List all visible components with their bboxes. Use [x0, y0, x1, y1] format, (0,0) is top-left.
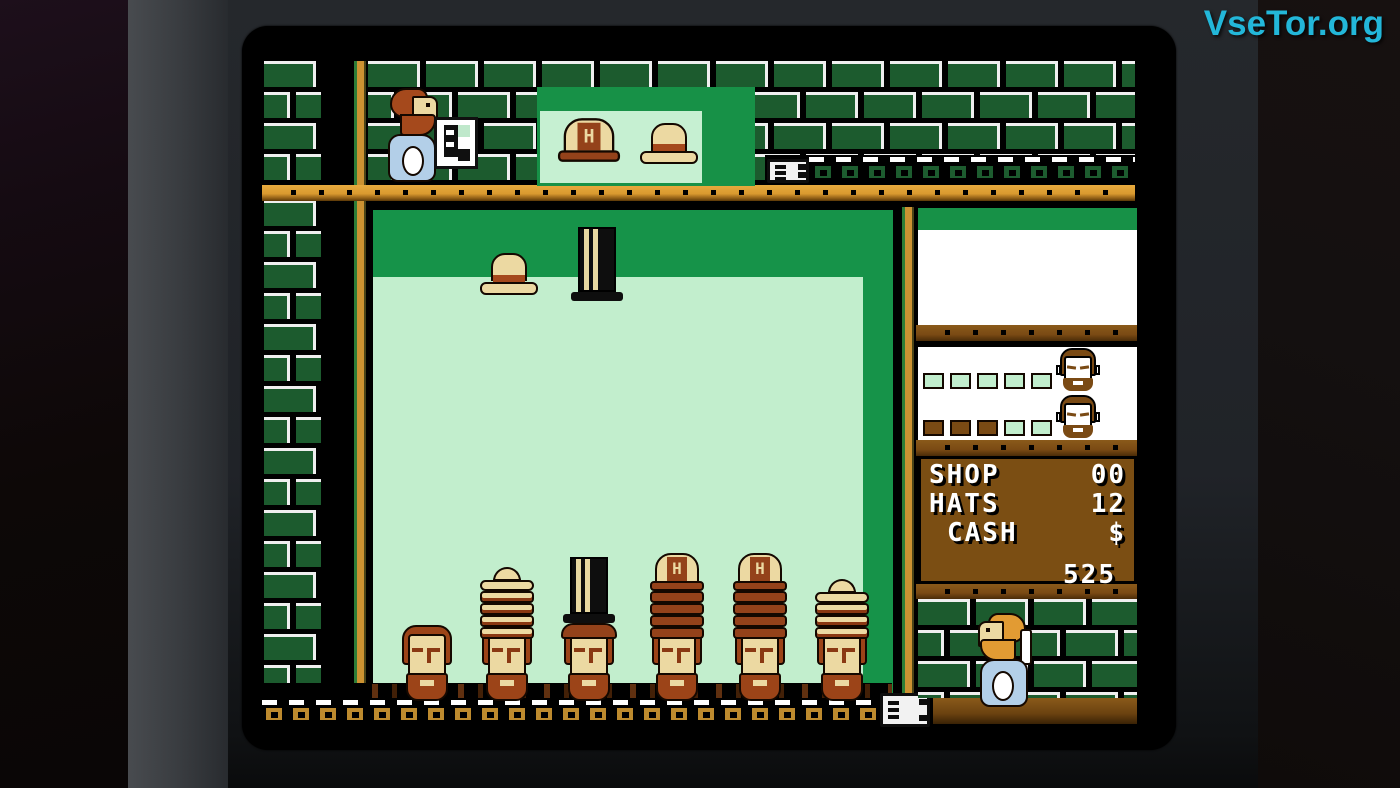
hud-hats-value: 12: [1091, 489, 1126, 517]
sidebar-beam-3: [916, 584, 1137, 599]
pillar-right: [900, 207, 916, 693]
hat-dispenser-machine: [767, 159, 809, 183]
hand: [402, 146, 424, 176]
sewing-machine: [880, 693, 930, 727]
hand: [992, 671, 1014, 701]
monitor-side-panel: [128, 0, 228, 788]
customer-panel: [918, 347, 1137, 440]
customer-conveyor: [262, 683, 892, 728]
meter-cell-empty: [950, 373, 971, 389]
meter-cell-empty: [923, 373, 944, 389]
meter-cell-empty: [1004, 373, 1025, 389]
wall-left: [264, 200, 321, 700]
playfield-floor-area: [373, 277, 863, 699]
beard: [400, 114, 436, 136]
hud-hats-line: HATS 12: [921, 488, 1134, 517]
hud-shop-line: SHOP 00: [921, 459, 1134, 488]
photo-background-right: [1258, 0, 1400, 788]
meter-cell-empty: [1031, 420, 1052, 436]
next-hats-preview-box: H: [537, 87, 755, 186]
hud-hats-label: HATS: [929, 489, 1000, 517]
hud-cash-label: CASH: [947, 518, 1018, 546]
sidebar-beam-2: [916, 440, 1137, 456]
conveyor-dash-line: [262, 700, 892, 705]
meter-cell-filled: [923, 420, 944, 436]
meter-cell-filled: [977, 420, 998, 436]
eye: [426, 103, 430, 107]
meter-cell-empty: [977, 373, 998, 389]
hud-shop-value: 00: [1091, 460, 1126, 488]
conveyor-speckles: [372, 684, 892, 698]
eye: [986, 628, 990, 632]
meter-cell-empty: [1004, 420, 1025, 436]
beam-top: [262, 185, 1135, 201]
order-board: [918, 230, 1137, 325]
pillar-left: [352, 61, 368, 700]
hat-feed-conveyor: [765, 155, 1135, 185]
preview-inner: H: [540, 111, 702, 183]
sidebar-beam-1: [916, 325, 1137, 341]
preview-hat-boater: [640, 123, 698, 169]
helmet-letter: H: [578, 123, 601, 151]
hat-chute-window: [434, 117, 478, 169]
conveyor-brackets: [262, 706, 892, 724]
watermark-text: VseTor.org: [1204, 4, 1384, 44]
sidebar-bottom-beam: [933, 698, 1137, 724]
hud-cash-line: CASH $: [921, 517, 1134, 546]
wall-left-top: [264, 61, 321, 185]
hud-shop-label: SHOP: [929, 460, 1000, 488]
screenshot: VseTor.org: [0, 0, 1400, 788]
photo-background-left: [0, 0, 128, 788]
preview-hat-hard-hat: H: [558, 118, 620, 162]
hud-cash-symbol: $: [1108, 518, 1126, 546]
shopkeeper-phone-character: [974, 613, 1028, 710]
falling-hat-top-hat: [571, 227, 623, 301]
hud-panel: SHOP 00 HATS 12 CASH $ 525: [918, 456, 1137, 584]
game-screen[interactable]: H: [258, 55, 1138, 728]
meter-cell-filled: [950, 420, 971, 436]
beard: [980, 639, 1016, 661]
falling-hat-boater: [480, 251, 538, 299]
conveyor-dash-line: [809, 157, 1135, 162]
customer-2-face: [1056, 395, 1100, 441]
meter-cell-empty: [1031, 373, 1052, 389]
customer-1-face: [1056, 348, 1100, 394]
sidebar-green-bar: [918, 208, 1137, 230]
